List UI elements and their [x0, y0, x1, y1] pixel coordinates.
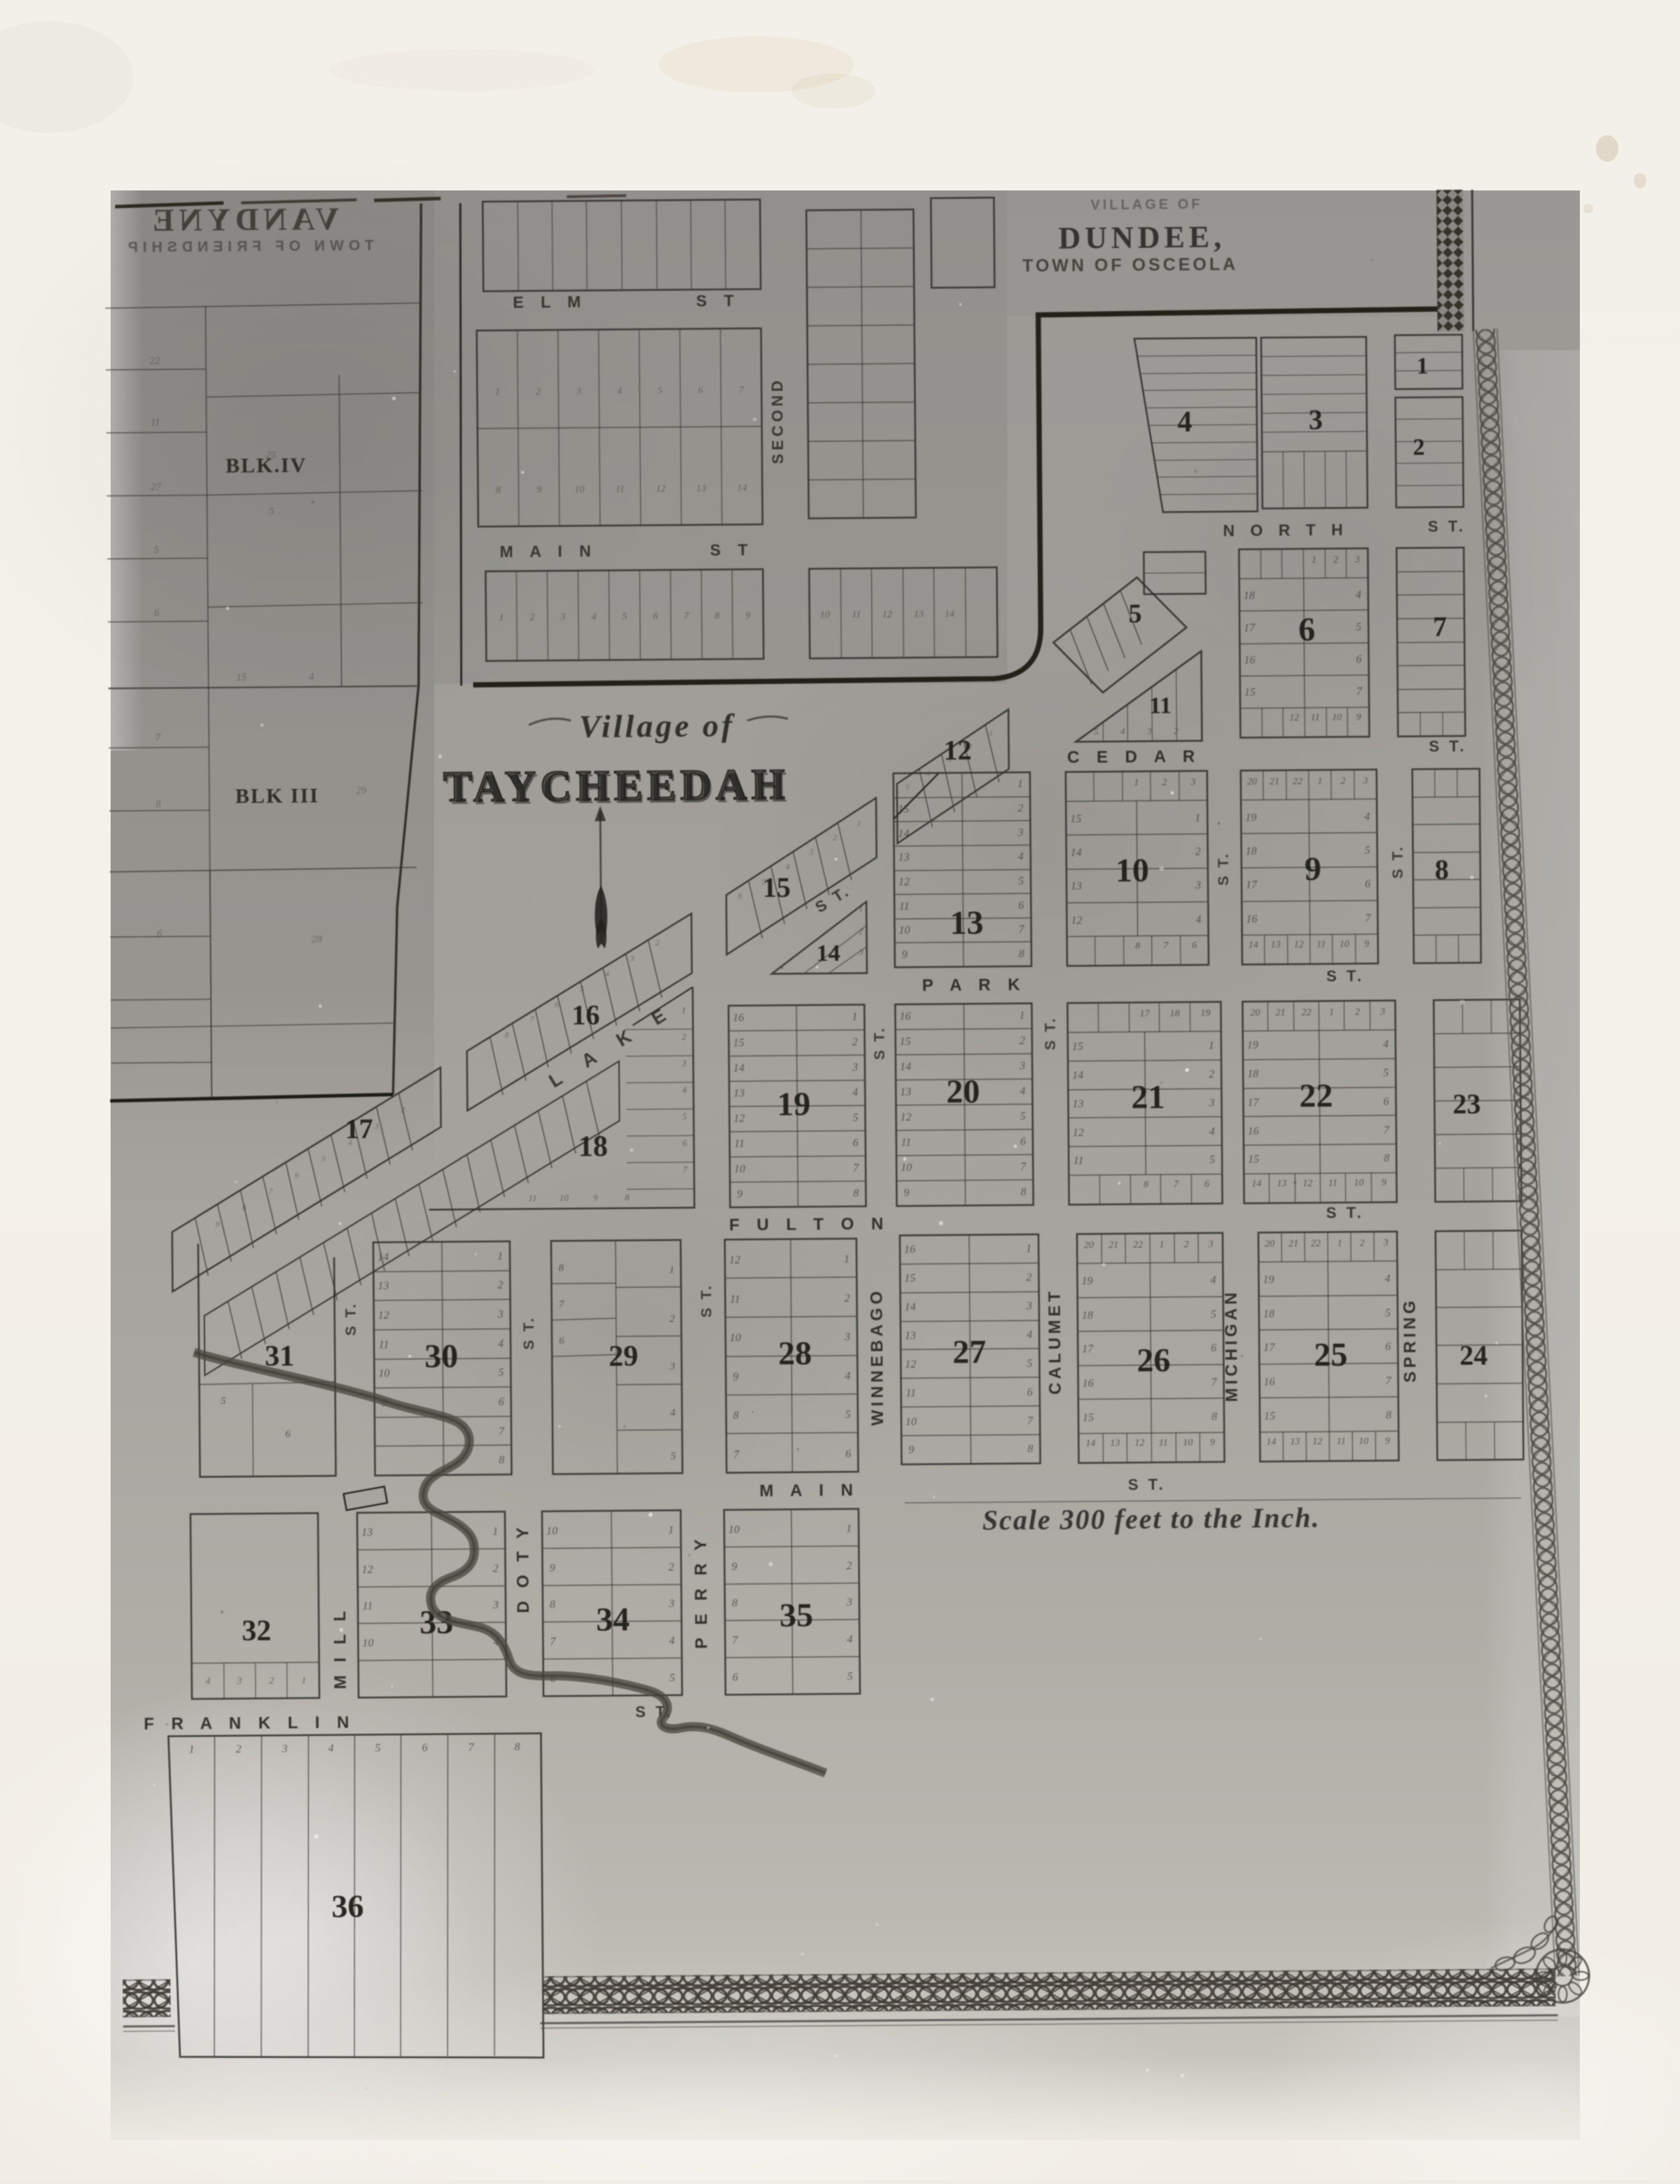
svg-text:S T.: S T.: [521, 1316, 537, 1349]
svg-text:7: 7: [1020, 1161, 1027, 1173]
svg-text:13: 13: [900, 1086, 911, 1098]
svg-text:2: 2: [681, 1031, 686, 1042]
svg-text:6: 6: [733, 1671, 738, 1683]
svg-text:9: 9: [1305, 851, 1321, 888]
svg-text:3: 3: [576, 387, 581, 397]
svg-text:6: 6: [559, 1335, 564, 1347]
svg-text:1: 1: [1195, 812, 1200, 824]
svg-text:14: 14: [377, 1251, 389, 1263]
svg-text:11: 11: [1337, 1436, 1346, 1447]
svg-text:3: 3: [282, 1743, 288, 1755]
svg-text:3: 3: [1207, 1239, 1213, 1250]
svg-text:6: 6: [157, 928, 162, 940]
svg-text:2: 2: [1195, 846, 1201, 858]
svg-text:5: 5: [845, 1409, 851, 1421]
svg-text:4: 4: [1120, 726, 1125, 737]
svg-text:6: 6: [295, 1170, 299, 1180]
svg-text:10: 10: [1332, 712, 1342, 723]
svg-text:16: 16: [1246, 913, 1257, 925]
svg-text:2: 2: [852, 1036, 858, 1048]
svg-text:9: 9: [737, 1188, 742, 1200]
svg-text:S T.: S T.: [698, 1284, 714, 1317]
svg-text:9: 9: [1385, 1436, 1390, 1447]
svg-text:1: 1: [1312, 555, 1317, 566]
svg-text:8: 8: [1212, 1411, 1217, 1423]
svg-text:11: 11: [852, 610, 861, 620]
svg-text:M I L L: M I L L: [331, 1607, 350, 1690]
svg-text:6: 6: [555, 999, 559, 1009]
svg-text:7: 7: [1365, 912, 1371, 924]
svg-text:28: 28: [778, 1335, 812, 1372]
svg-text:11: 11: [1149, 693, 1172, 718]
svg-text:1: 1: [856, 819, 861, 828]
svg-text:2: 2: [833, 833, 837, 842]
svg-text:29: 29: [609, 1340, 638, 1372]
svg-text:6: 6: [1211, 1342, 1216, 1354]
svg-text:7: 7: [683, 611, 689, 622]
svg-text:1: 1: [1026, 1243, 1032, 1255]
svg-text:1: 1: [1337, 1238, 1342, 1249]
svg-text:14: 14: [905, 1301, 916, 1313]
svg-text:10: 10: [1116, 852, 1149, 889]
svg-text:3: 3: [1017, 827, 1023, 839]
svg-text:16: 16: [1263, 1376, 1275, 1388]
svg-text:1: 1: [1317, 777, 1322, 787]
svg-text:1: 1: [1417, 353, 1429, 379]
svg-text:11: 11: [901, 1136, 911, 1148]
svg-text:3: 3: [560, 612, 565, 622]
svg-text:S T.: S T.: [1428, 517, 1466, 535]
svg-text:4: 4: [852, 1087, 858, 1099]
svg-text:11: 11: [730, 1293, 740, 1305]
svg-text:TOWN OF FRIENDSHIP: TOWN OF FRIENDSHIP: [123, 237, 374, 256]
svg-text:14: 14: [817, 940, 840, 966]
svg-text:4: 4: [1384, 1273, 1390, 1285]
svg-text:9: 9: [732, 1561, 737, 1573]
svg-text:4: 4: [498, 1338, 504, 1350]
svg-text:S T: S T: [696, 291, 740, 309]
svg-text:5: 5: [1211, 1309, 1216, 1321]
svg-text:21: 21: [1275, 1008, 1285, 1018]
svg-text:11: 11: [1328, 1178, 1338, 1188]
svg-text:F R A N K L I N: F R A N K L I N: [144, 1713, 355, 1733]
svg-text:10: 10: [560, 1192, 569, 1203]
svg-text:6: 6: [1365, 878, 1370, 890]
svg-text:2: 2: [536, 387, 541, 397]
svg-text:6: 6: [154, 608, 160, 619]
svg-text:13: 13: [905, 1330, 916, 1342]
svg-text:S T.: S T.: [343, 1302, 359, 1335]
svg-text:6: 6: [845, 1448, 851, 1460]
svg-text:5: 5: [905, 783, 910, 791]
svg-text:12: 12: [362, 1564, 373, 1576]
svg-text:2: 2: [1183, 1239, 1188, 1250]
svg-text:6: 6: [853, 1137, 859, 1149]
svg-text:10: 10: [546, 1525, 557, 1537]
svg-text:4: 4: [1018, 851, 1024, 863]
svg-text:5: 5: [221, 1396, 226, 1407]
svg-text:35: 35: [779, 1597, 813, 1634]
svg-text:11: 11: [1317, 940, 1326, 950]
svg-text:4: 4: [786, 862, 790, 872]
svg-text:7: 7: [739, 385, 744, 396]
svg-text:4: 4: [605, 969, 609, 979]
svg-text:10: 10: [378, 1368, 389, 1379]
svg-text:3: 3: [374, 1121, 379, 1131]
svg-text:16: 16: [571, 999, 599, 1031]
svg-text:22: 22: [1311, 1239, 1321, 1249]
svg-text:5: 5: [671, 1451, 676, 1462]
svg-text:S T.: S T.: [1326, 967, 1364, 985]
svg-text:5: 5: [580, 984, 584, 994]
svg-text:11: 11: [379, 1339, 389, 1351]
svg-text:12: 12: [882, 609, 892, 620]
svg-text:8: 8: [714, 611, 719, 621]
svg-text:7: 7: [683, 1164, 688, 1175]
svg-text:2: 2: [1174, 725, 1179, 736]
svg-text:12: 12: [1303, 1178, 1312, 1189]
svg-text:4: 4: [309, 672, 314, 683]
svg-text:10: 10: [574, 485, 584, 495]
svg-text:18: 18: [578, 1131, 608, 1163]
svg-text:7: 7: [1356, 686, 1363, 697]
svg-text:32: 32: [242, 1615, 271, 1647]
svg-text:2: 2: [847, 1560, 852, 1572]
svg-text:14: 14: [737, 483, 747, 494]
svg-text:12: 12: [898, 876, 910, 888]
svg-text:4: 4: [1027, 1329, 1032, 1341]
svg-text:2: 2: [1020, 1035, 1025, 1047]
svg-text:3: 3: [669, 1361, 676, 1372]
svg-text:11: 11: [1311, 713, 1320, 723]
svg-text:18: 18: [1247, 1068, 1258, 1080]
svg-text:17: 17: [1082, 1343, 1094, 1355]
svg-text:VILLAGE OF: VILLAGE OF: [1090, 197, 1202, 213]
svg-text:4: 4: [779, 962, 784, 972]
svg-text:5: 5: [498, 1367, 504, 1379]
svg-text:10: 10: [1340, 939, 1349, 950]
svg-text:2: 2: [1162, 777, 1167, 788]
svg-text:10: 10: [1183, 1438, 1193, 1448]
svg-text:10: 10: [728, 1524, 740, 1536]
svg-text:16: 16: [1244, 654, 1255, 666]
svg-text:5: 5: [1128, 599, 1141, 629]
svg-text:2: 2: [859, 926, 863, 936]
svg-text:8: 8: [1144, 1180, 1148, 1190]
svg-text:17: 17: [1247, 1097, 1259, 1108]
svg-text:4: 4: [845, 1370, 850, 1382]
svg-text:13: 13: [1271, 940, 1281, 950]
svg-text:3: 3: [1195, 879, 1201, 891]
svg-text:1: 1: [492, 1526, 498, 1538]
svg-text:S T.: S T.: [872, 1026, 888, 1059]
svg-text:Village of: Village of: [579, 707, 736, 744]
svg-text:TAYCHEEDAH: TAYCHEEDAH: [445, 764, 792, 814]
svg-text:1: 1: [499, 613, 504, 623]
svg-text:20: 20: [1250, 1008, 1260, 1018]
svg-text:12: 12: [1134, 1438, 1144, 1449]
svg-text:5: 5: [853, 1112, 859, 1124]
svg-text:2: 2: [845, 1293, 850, 1305]
svg-text:8: 8: [155, 799, 161, 810]
svg-text:2: 2: [1018, 802, 1023, 814]
svg-text:15: 15: [1264, 1410, 1275, 1422]
svg-text:1: 1: [495, 387, 500, 398]
svg-text:3: 3: [1208, 1097, 1214, 1109]
svg-text:7: 7: [733, 1449, 740, 1461]
svg-text:6: 6: [1385, 1341, 1391, 1353]
svg-text:18: 18: [1263, 1308, 1275, 1320]
svg-text:5: 5: [762, 877, 766, 886]
svg-text:7: 7: [499, 1426, 505, 1438]
svg-text:27: 27: [151, 482, 162, 493]
svg-text:9: 9: [902, 949, 908, 961]
svg-text:S T.: S T.: [1216, 852, 1232, 886]
svg-text:15: 15: [1070, 813, 1081, 825]
svg-text:18: 18: [1082, 1309, 1093, 1321]
svg-text:25: 25: [266, 450, 277, 461]
svg-text:VANDYNE: VANDYNE: [148, 201, 339, 238]
svg-text:8: 8: [1384, 1153, 1389, 1164]
svg-text:9: 9: [1356, 712, 1361, 723]
svg-text:SECOND: SECOND: [768, 377, 786, 464]
svg-text:TOWN OF OSCEOLA: TOWN OF OSCEOLA: [1022, 254, 1238, 275]
svg-text:6: 6: [285, 1428, 291, 1440]
svg-text:9: 9: [1210, 1438, 1215, 1448]
svg-text:3: 3: [947, 756, 952, 765]
svg-text:19: 19: [1263, 1274, 1274, 1286]
svg-text:2: 2: [401, 1105, 405, 1115]
svg-text:WINNEBAGO: WINNEBAGO: [867, 1288, 887, 1426]
svg-text:F U L T O N: F U L T O N: [729, 1214, 889, 1234]
svg-text:2: 2: [529, 612, 534, 622]
svg-text:8: 8: [733, 1410, 739, 1421]
svg-text:20: 20: [1247, 777, 1257, 787]
svg-text:3: 3: [1026, 1300, 1032, 1312]
svg-text:20: 20: [1084, 1240, 1094, 1251]
svg-text:M A I N: M A I N: [499, 542, 597, 561]
svg-text:8: 8: [1027, 1443, 1033, 1455]
svg-text:8: 8: [625, 1192, 630, 1202]
svg-text:7: 7: [1163, 940, 1169, 951]
svg-text:12: 12: [734, 1113, 745, 1125]
svg-text:16: 16: [904, 1244, 915, 1256]
svg-text:11: 11: [1074, 1155, 1084, 1167]
svg-text:17: 17: [1139, 1009, 1150, 1020]
svg-text:2: 2: [1359, 1238, 1364, 1249]
svg-text:1: 1: [1019, 1010, 1025, 1022]
svg-text:14: 14: [898, 828, 909, 840]
svg-text:1: 1: [189, 1744, 195, 1755]
svg-text:2: 2: [669, 1562, 674, 1573]
svg-text:15: 15: [1072, 1041, 1083, 1052]
svg-text:10: 10: [905, 1416, 917, 1428]
svg-text:12: 12: [1071, 914, 1082, 926]
svg-text:8: 8: [1020, 1186, 1026, 1198]
svg-text:19: 19: [777, 1085, 810, 1122]
svg-text:15: 15: [1244, 686, 1256, 698]
svg-text:1: 1: [852, 1011, 857, 1023]
svg-text:12: 12: [1073, 1127, 1084, 1139]
svg-text:15: 15: [900, 1036, 911, 1048]
svg-text:14: 14: [1071, 847, 1082, 858]
svg-text:9: 9: [216, 1219, 220, 1229]
svg-text:8: 8: [499, 1454, 504, 1466]
svg-text:4: 4: [1210, 1274, 1216, 1286]
svg-text:22: 22: [1293, 777, 1303, 787]
svg-text:P A R K: P A R K: [922, 975, 1027, 995]
svg-text:36: 36: [331, 1888, 363, 1924]
svg-text:9: 9: [1382, 1178, 1387, 1188]
svg-text:13: 13: [733, 1087, 744, 1099]
svg-text:12: 12: [901, 1111, 912, 1123]
svg-text:3: 3: [1362, 776, 1368, 786]
svg-text:8: 8: [1019, 948, 1025, 960]
svg-text:10: 10: [820, 610, 830, 620]
svg-text:7: 7: [1211, 1377, 1217, 1389]
svg-text:34: 34: [596, 1601, 630, 1638]
svg-text:13: 13: [914, 609, 924, 620]
svg-text:12: 12: [905, 1358, 916, 1370]
svg-text:5: 5: [1209, 1154, 1215, 1166]
svg-text:3: 3: [1019, 1060, 1025, 1072]
svg-text:11: 11: [734, 1138, 744, 1150]
svg-text:9: 9: [1364, 939, 1369, 950]
svg-text:11: 11: [616, 484, 625, 494]
svg-text:8: 8: [242, 1203, 247, 1213]
svg-text:14: 14: [733, 1062, 744, 1074]
svg-text:3: 3: [236, 1676, 242, 1687]
svg-text:9: 9: [593, 1192, 598, 1203]
svg-text:6: 6: [1020, 1136, 1026, 1148]
svg-text:23: 23: [1452, 1088, 1480, 1120]
svg-text:29: 29: [356, 785, 367, 796]
svg-text:4: 4: [1020, 1085, 1025, 1097]
svg-text:15: 15: [904, 1272, 915, 1284]
svg-text:20: 20: [1265, 1239, 1275, 1249]
svg-text:E L M: E L M: [513, 293, 587, 312]
svg-text:14: 14: [1072, 1069, 1083, 1081]
svg-text:14: 14: [1249, 940, 1258, 950]
svg-text:1: 1: [1209, 1040, 1214, 1052]
svg-text:6: 6: [1192, 940, 1197, 951]
svg-text:6: 6: [1383, 1096, 1389, 1108]
svg-text:4: 4: [1209, 1126, 1215, 1138]
svg-text:DUNDEE,: DUNDEE,: [1058, 220, 1226, 256]
svg-text:Scale 300 feet to the Inch.: Scale 300 feet to the Inch.: [982, 1502, 1320, 1536]
svg-text:9: 9: [908, 1444, 914, 1456]
svg-text:22: 22: [1301, 1008, 1311, 1018]
svg-text:3: 3: [844, 1331, 850, 1343]
svg-text:6: 6: [653, 611, 658, 622]
svg-text:4: 4: [670, 1407, 676, 1419]
svg-text:10: 10: [901, 1162, 912, 1174]
svg-text:14: 14: [1251, 1178, 1261, 1189]
svg-text:16: 16: [1083, 1377, 1094, 1389]
svg-text:5: 5: [682, 1111, 687, 1122]
svg-text:5: 5: [269, 506, 275, 517]
svg-text:5: 5: [153, 545, 159, 556]
svg-text:1: 1: [1159, 1239, 1164, 1250]
svg-text:1: 1: [669, 1265, 674, 1276]
svg-text:2: 2: [497, 1279, 503, 1291]
svg-text:13: 13: [361, 1526, 373, 1538]
svg-text:4: 4: [591, 612, 596, 622]
svg-text:13: 13: [898, 851, 910, 863]
svg-text:12: 12: [1312, 1437, 1322, 1447]
svg-text:MICHIGAN: MICHIGAN: [1222, 1289, 1242, 1403]
svg-text:4: 4: [669, 1635, 674, 1647]
svg-text:S T.: S T.: [1429, 737, 1466, 755]
svg-text:1: 1: [681, 1005, 686, 1015]
svg-text:2: 2: [1333, 555, 1338, 565]
svg-text:7: 7: [1433, 611, 1447, 642]
svg-text:4: 4: [348, 1137, 352, 1147]
svg-text:6: 6: [1298, 611, 1315, 648]
svg-text:22: 22: [149, 356, 160, 367]
svg-text:17: 17: [1263, 1342, 1275, 1354]
svg-text:5: 5: [1020, 1111, 1026, 1122]
svg-text:8: 8: [1386, 1410, 1391, 1421]
svg-text:5: 5: [375, 1742, 381, 1754]
svg-text:12: 12: [1294, 940, 1304, 950]
svg-text:1: 1: [668, 1524, 674, 1536]
svg-text:1: 1: [301, 1676, 306, 1686]
svg-text:5: 5: [658, 386, 662, 396]
svg-text:2: 2: [236, 1744, 242, 1755]
svg-text:5: 5: [1027, 1358, 1032, 1370]
svg-text:4: 4: [847, 1634, 852, 1646]
svg-text:3: 3: [497, 1309, 504, 1321]
svg-text:21: 21: [1109, 1240, 1118, 1251]
svg-text:16: 16: [1248, 1125, 1259, 1137]
svg-text:11: 11: [363, 1600, 373, 1612]
svg-text:4: 4: [682, 1085, 687, 1095]
svg-text:11: 11: [899, 900, 910, 912]
svg-text:7: 7: [1027, 1415, 1034, 1427]
svg-text:11: 11: [1159, 1438, 1168, 1448]
svg-text:3: 3: [859, 947, 863, 957]
svg-text:3: 3: [1380, 1007, 1385, 1017]
svg-text:1: 1: [989, 729, 993, 737]
svg-text:1: 1: [1329, 1007, 1334, 1017]
svg-text:4: 4: [1177, 406, 1192, 438]
svg-text:10: 10: [1359, 1436, 1368, 1447]
svg-text:BLK III: BLK III: [235, 784, 319, 808]
svg-text:5: 5: [847, 1671, 853, 1683]
svg-text:1: 1: [1018, 778, 1023, 790]
svg-text:3: 3: [1309, 404, 1323, 436]
svg-text:6: 6: [499, 1396, 504, 1408]
svg-text:12: 12: [655, 484, 665, 494]
svg-text:5: 5: [669, 1672, 675, 1684]
svg-text:9: 9: [550, 1562, 555, 1574]
svg-text:8: 8: [550, 1599, 555, 1611]
svg-text:2: 2: [969, 743, 973, 751]
svg-text:11: 11: [528, 1192, 536, 1203]
svg-text:19: 19: [1081, 1275, 1092, 1287]
svg-text:13: 13: [1277, 1178, 1286, 1189]
svg-text:7: 7: [1385, 1375, 1391, 1387]
svg-text:1: 1: [1134, 778, 1139, 788]
svg-text:6: 6: [683, 1138, 688, 1148]
svg-text:2: 2: [655, 938, 660, 947]
svg-text:12: 12: [378, 1309, 389, 1321]
svg-text:2: 2: [269, 1676, 274, 1686]
svg-text:18: 18: [1244, 590, 1255, 601]
svg-text:16: 16: [899, 1010, 910, 1022]
svg-text:5: 5: [1365, 844, 1370, 856]
